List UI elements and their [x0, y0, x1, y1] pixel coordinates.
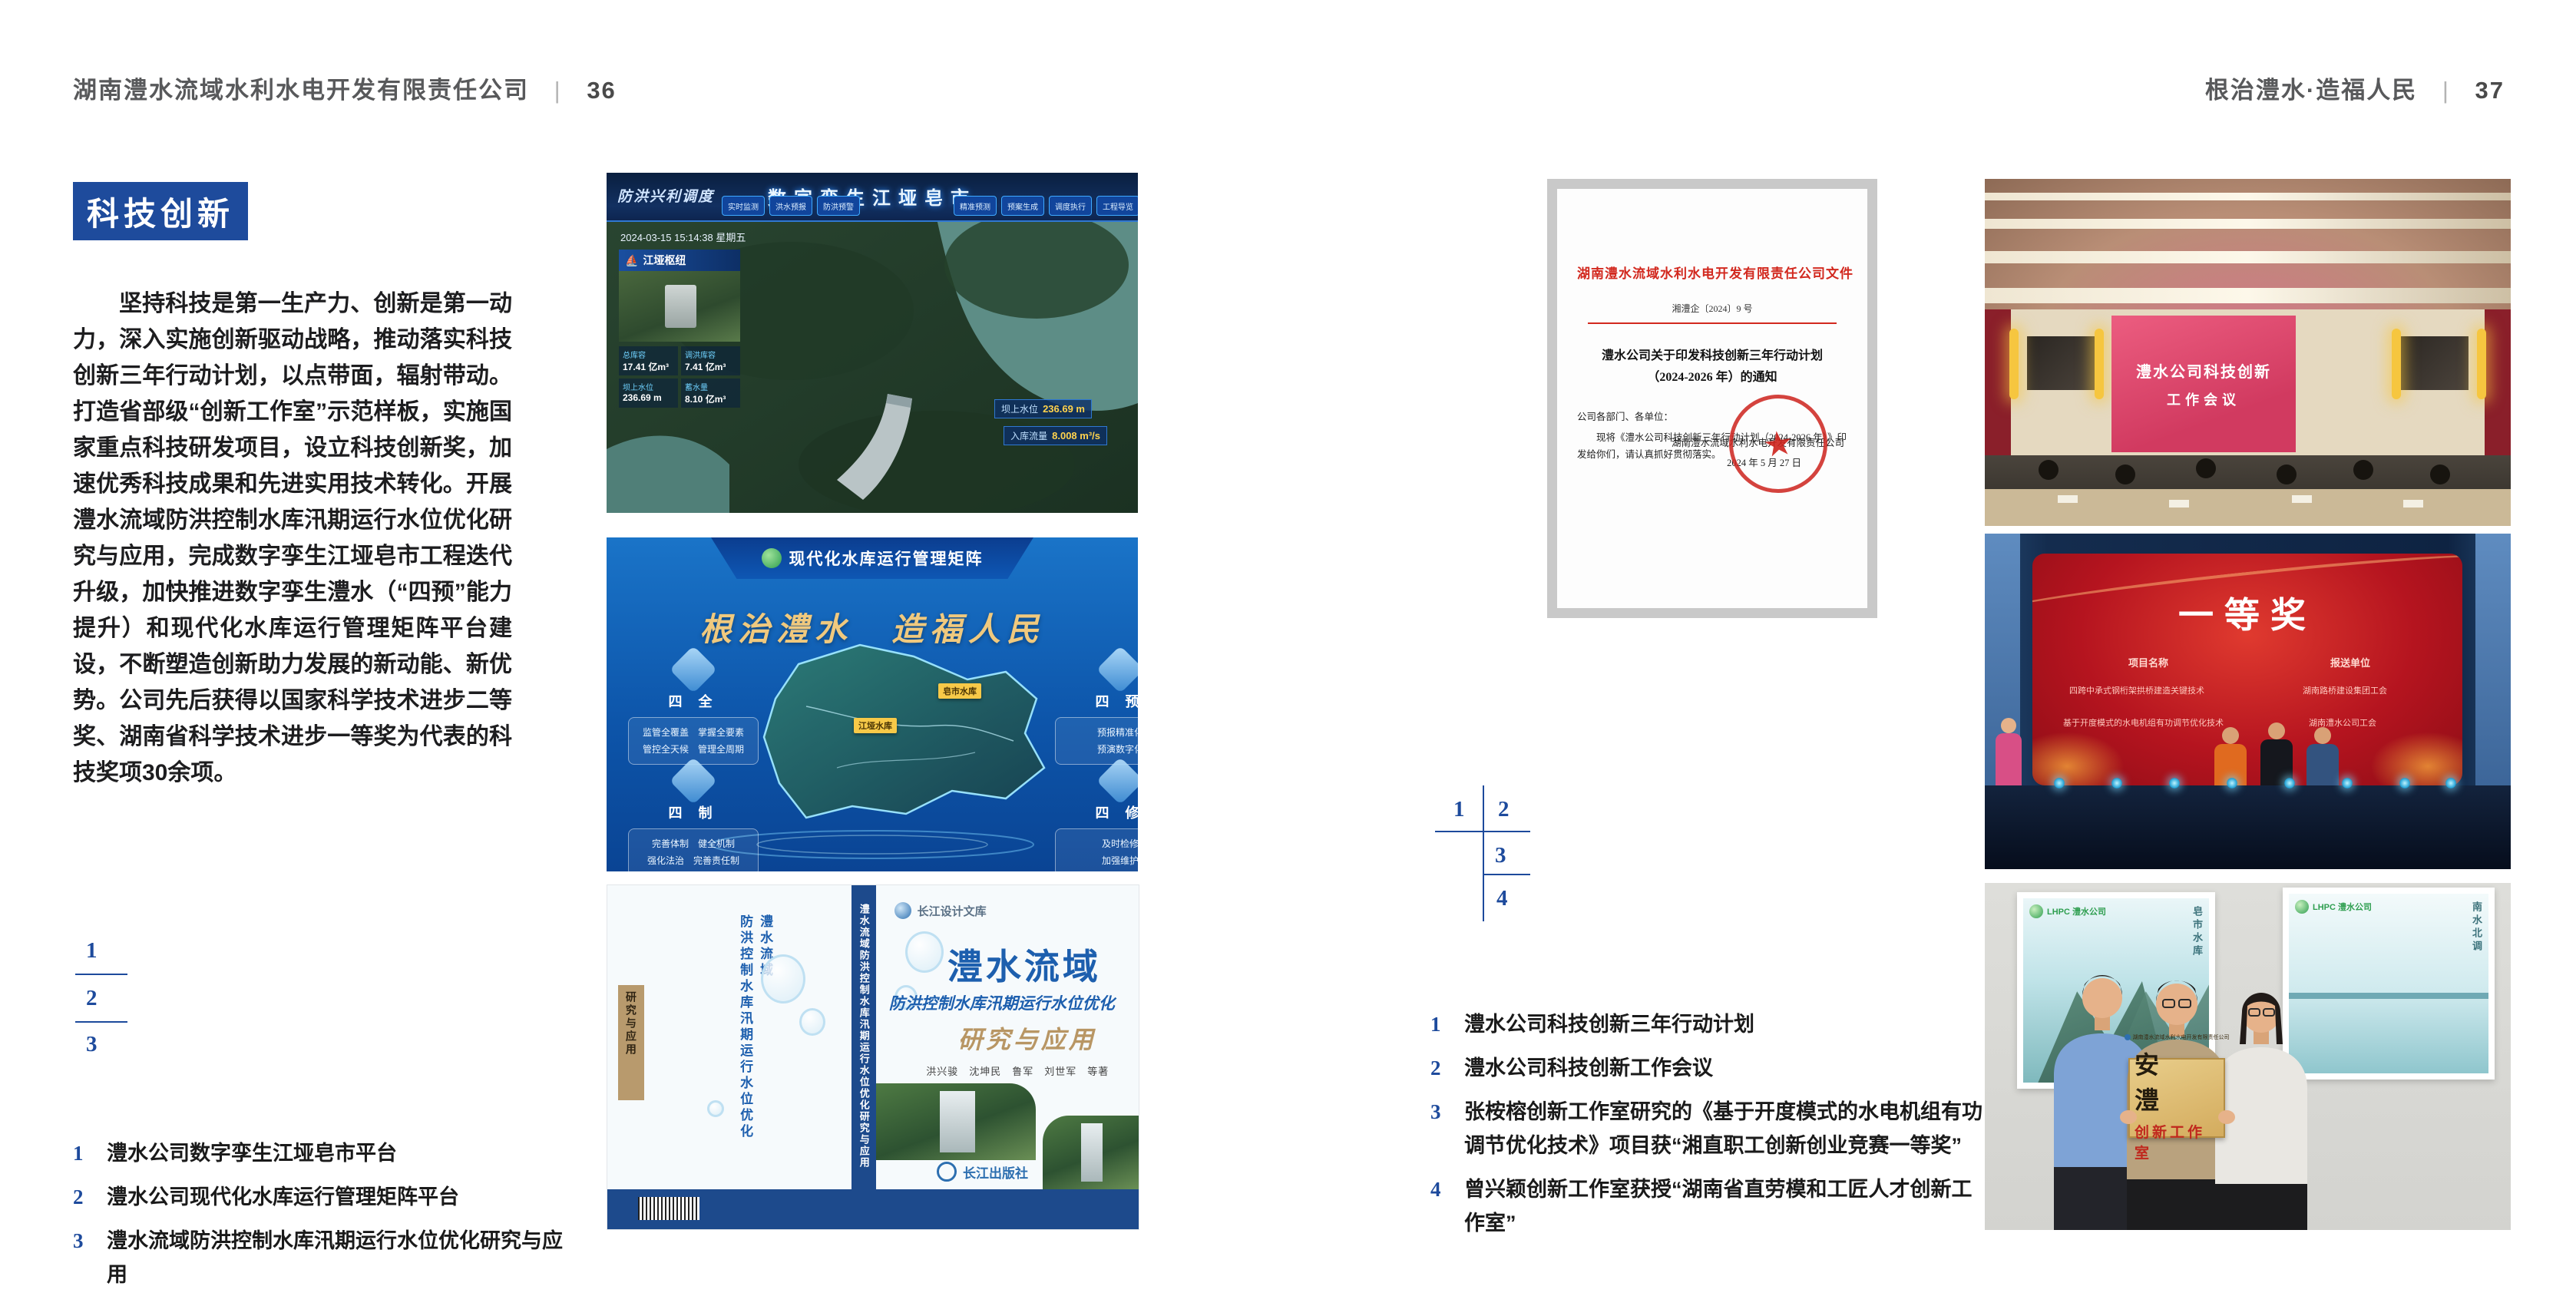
figure-index-3: 3 — [86, 1032, 98, 1057]
group-card: 监管全覆盖 掌握全要素 管控全天候 管理全周期 — [628, 717, 759, 765]
spine-title: 澧水流域防洪控制水库汛期运行水位优化研究与应用 — [857, 904, 871, 1169]
stage-light — [2445, 778, 2456, 789]
book-title-main: 澧水流域 — [947, 939, 1101, 990]
desk-paper — [2292, 495, 2312, 503]
stage-light — [2399, 778, 2410, 789]
diamond-icon — [670, 646, 717, 693]
series-name: 长江设计文库 — [918, 903, 987, 919]
caption-item: 3 张桉榕创新工作室研究的《基于开度模式的水电机组有功调节优化技术》项目获“湘直… — [1430, 1095, 1986, 1162]
tab-precise-forecast[interactable]: 精准预测 — [954, 196, 997, 216]
dam-photo-2 — [1043, 1116, 1139, 1189]
tab-flood-forecast[interactable]: 洪水预报 — [769, 196, 812, 216]
stat-label: 蓄水量 — [685, 381, 736, 392]
stat-label: 坝上水位 — [623, 381, 674, 392]
bubble-decoration — [799, 1008, 825, 1036]
map-tag-jiangya: 江垭水库 — [854, 718, 897, 733]
hand — [2120, 1110, 2137, 1124]
book-authors: 洪兴骏 沈坤民 鲁军 刘世军 等著 — [926, 1063, 1109, 1078]
back-cover-title: 澧水流域 防洪控制水库汛期运行水位优化 — [735, 914, 775, 1140]
bubble-decoration — [707, 1100, 724, 1117]
screen-line-1: 澧水公司科技创新 — [2136, 359, 2271, 382]
wall-red-panel — [1985, 309, 2011, 455]
panel-header: ⛵ 江垭枢纽 — [619, 250, 740, 271]
bubble-decoration — [905, 931, 944, 973]
group-line: 预报精准化 — [1060, 724, 1138, 741]
barcode — [638, 1197, 699, 1220]
left-page-header: 湖南澧水流域水利水电开发有限责任公司 | 36 — [73, 71, 617, 105]
tab-dispatch-execute[interactable]: 调度执行 — [1049, 196, 1092, 216]
header-separator: | — [554, 77, 562, 104]
matrix-title: 现代化水库运行管理矩阵 — [789, 547, 984, 570]
index-divider-vertical — [1483, 785, 1484, 921]
matrix-group-sizhi: 四 制 完善体制 健全机制 强化法治 完善责任制 — [628, 764, 759, 871]
body-paragraph: 坚持科技是第一生产力、创新是第一动力，深入实施创新驱动战略，推动落实科技创新三年… — [73, 286, 512, 791]
caption-text: 澧水公司科技创新三年行动计划 — [1464, 1007, 1986, 1041]
light-strip — [1985, 219, 2511, 229]
group-line: 及时检修 — [1060, 835, 1138, 852]
caption-item: 4 曾兴颖创新工作室获授“湖南省直劳模和工匠人才创新工作室” — [1430, 1172, 1986, 1240]
stat-cell: 总库容 17.41 亿m³ — [619, 346, 678, 375]
photo-award-ceremony: 一等奖 项目名称 报送单位 四跨中承式钢桁架拱桥建造关键技术 湖南路桥建设集团工… — [1985, 534, 2511, 869]
caption-number: 1 — [73, 1136, 107, 1170]
stage-light — [2169, 778, 2180, 789]
wall-lamp — [2095, 329, 2104, 399]
stat-value: 236.69 m — [623, 392, 674, 403]
figure-index-4: 4 — [1496, 886, 1508, 911]
book-spine: 澧水流域防洪控制水库汛期运行水位优化研究与应用 — [852, 885, 876, 1229]
presenter-head — [2268, 722, 2285, 739]
group-card: 完善体制 健全机制 强化法治 完善责任制 — [628, 828, 759, 871]
plaque-name: 安 澧 — [2135, 1046, 2219, 1116]
plaque-org-text: 湖南澧水流域水利水电开发有限责任公司 — [2133, 1033, 2230, 1041]
caption-item: 2 澧水公司科技创新工作会议 — [1430, 1051, 1986, 1085]
awardee-head — [2222, 727, 2239, 744]
document-page: 湖南澧水流域水利水电开发有限责任公司文件 湘澧企〔2024〕9 号 澧水公司关于… — [1557, 189, 1867, 608]
index-divider — [1483, 874, 1530, 875]
stage-light — [2227, 778, 2237, 789]
award-project-1: 四跨中承式钢桁架拱桥建造关键技术 — [2069, 684, 2204, 696]
map-tag-zaoshi: 皂市水库 — [938, 683, 981, 699]
book-title-tail: 研究与应用 — [958, 1020, 1096, 1056]
figure-official-document: 湖南澧水流域水利水电开发有限责任公司文件 湘澧企〔2024〕9 号 澧水公司关于… — [1547, 179, 1877, 618]
attendee-head — [2039, 460, 2058, 480]
matrix-group-siyu: 四 预 预报精准化 预演数字化 — [1055, 653, 1138, 765]
wall-red-panel — [2485, 309, 2511, 455]
matrix-group-siquan: 四 全 监管全覆盖 掌握全要素 管控全天候 管理全周期 — [628, 653, 759, 765]
series-logo-icon — [894, 902, 911, 919]
group-line: 管控全天候 管理全周期 — [633, 741, 753, 758]
caption-item: 2 澧水公司现代化水库运行管理矩阵平台 — [73, 1180, 564, 1214]
desk-paper — [2058, 495, 2078, 503]
dashboard-brand: 防洪兴利调度 — [617, 185, 714, 206]
attendee-head — [2430, 465, 2450, 484]
diamond-icon — [1096, 646, 1138, 693]
figure-index-1: 1 — [86, 938, 98, 964]
desk-paper — [2169, 500, 2189, 508]
tab-flood-warning[interactable]: 防洪预警 — [817, 196, 860, 216]
stat-cell: 蓄水量 8.10 亿m³ — [681, 379, 740, 408]
innovation-studio-plaque: 湖南澧水流域水利水电开发有限责任公司 安 澧 创新工作室 — [2128, 1058, 2225, 1138]
award-col-unit: 报送单位 — [2330, 655, 2370, 670]
stage-light — [2342, 778, 2353, 789]
company-name: 湖南澧水流域水利水电开发有限责任公司 — [73, 77, 529, 104]
diamond-icon — [670, 757, 717, 805]
people-illustration — [1985, 883, 2511, 1230]
stage-light — [2111, 778, 2122, 789]
caption-number: 2 — [73, 1180, 107, 1214]
chip-value: 236.69 m — [1043, 403, 1085, 415]
host-head — [2001, 718, 2016, 733]
caption-item: 1 澧水公司科技创新三年行动计划 — [1430, 1007, 1986, 1041]
document-title: 澧水公司关于印发科技创新三年行动计划 （2024-2026 年）的通知 — [1577, 346, 1847, 388]
brochure-spread: 湖南澧水流域水利水电开发有限责任公司 | 36 根治澧水·造福人民 | 37 科… — [0, 0, 2576, 1306]
stat-label: 总库容 — [623, 349, 674, 360]
book-title-sub: 防洪控制水库汛期运行水位优化 — [889, 991, 1115, 1014]
group-name: 四 全 — [628, 691, 759, 711]
document-red-rule — [1588, 322, 1837, 324]
left-caption-list: 1 澧水公司数字孪生江垭皂市平台 2 澧水公司现代化水库运行管理矩阵平台 3 澧… — [73, 1136, 564, 1291]
figure-index-1: 1 — [1453, 797, 1465, 822]
stat-cell: 坝上水位 236.69 m — [619, 379, 678, 408]
water-level-chip: 坝上水位 236.69 m — [994, 399, 1092, 418]
group-name: 四 预 — [1055, 691, 1138, 711]
stat-value: 8.10 亿m³ — [685, 392, 736, 405]
chip-label: 坝上水位 — [1001, 402, 1038, 415]
award-headline: 一等奖 — [2032, 587, 2462, 638]
light-strip — [1985, 251, 2511, 263]
index-divider — [75, 974, 127, 975]
document-red-header: 湖南澧水流域水利水电开发有限责任公司文件 — [1577, 263, 1847, 282]
caption-number: 2 — [1430, 1051, 1464, 1085]
figure-index-3: 3 — [1495, 843, 1506, 868]
wall-lamp — [2392, 329, 2401, 399]
official-seal: ★ — [1723, 388, 1834, 500]
figure-digital-twin-dashboard: 防洪兴利调度 数字孪生江垭皂市 实时监测 洪水预报 防洪预警 精准预测 预案生成… — [607, 173, 1138, 513]
light-strip — [1985, 288, 2511, 303]
gold-glow-decoration — [2032, 732, 2125, 785]
lhpc-logo-icon — [762, 548, 782, 568]
dam-thumbnail — [619, 271, 740, 342]
tab-project-tour[interactable]: 工程导览 — [1096, 196, 1138, 216]
caption-item: 1 澧水公司数字孪生江垭皂市平台 — [73, 1136, 564, 1170]
group-line: 强化法治 完善责任制 — [633, 852, 753, 869]
light-strip — [1985, 193, 2511, 200]
page-number-right: 37 — [2475, 77, 2505, 104]
index-divider — [1435, 831, 1530, 832]
stat-value: 17.41 亿m³ — [623, 360, 674, 373]
screen-line-2: 工作会议 — [2167, 389, 2240, 409]
award-unit-1: 湖南路桥建设集团工会 — [2303, 684, 2387, 696]
plaque-logo-icon — [2125, 1034, 2131, 1040]
photo-innovation-meeting: 澧水公司科技创新 工作会议 — [1985, 179, 2511, 526]
back-tag-text: 研究与应用 — [623, 991, 639, 1056]
chip-value: 8.008 m³/s — [1052, 430, 1100, 441]
caption-number: 3 — [73, 1224, 107, 1291]
plaque-org-line: 湖南澧水流域水利水电开发有限责任公司 — [2125, 1033, 2230, 1041]
wall-tv — [2396, 336, 2469, 390]
seal-star-icon: ★ — [1761, 422, 1796, 465]
panel-stats: 总库容 17.41 亿m³ 调洪库容 7.41 亿m³ 坝上水位 236.69 … — [619, 346, 740, 408]
desk-paper — [2403, 500, 2423, 508]
stage-floor — [1985, 785, 2511, 869]
document-number: 湘澧企〔2024〕9 号 — [1577, 302, 1847, 315]
matrix-header-ribbon: 现代化水库运行管理矩阵 — [711, 537, 1033, 579]
figure-book-cover: 研究与应用 澧水流域 防洪控制水库汛期运行水位优化 澧水流域防洪控制水库汛期运行… — [607, 884, 1139, 1230]
publisher-logo: 长江出版社 — [937, 1162, 1028, 1182]
right-page-header: 根治澧水·造福人民 | 37 — [2205, 71, 2505, 105]
award-project-2: 基于开度模式的水电机组有功调节优化技术 — [2063, 716, 2224, 729]
panel-title: 江垭枢纽 — [643, 253, 686, 268]
caption-text: 曾兴颖创新工作室获授“湖南省直劳模和工匠人才创新工作室” — [1464, 1172, 1986, 1240]
stat-cell: 调洪库容 7.41 亿m³ — [681, 346, 740, 375]
caption-text: 澧水公司现代化水库运行管理矩阵平台 — [107, 1180, 564, 1214]
figure-index-2: 2 — [86, 986, 98, 1011]
group-line: 监管全覆盖 掌握全要素 — [633, 724, 753, 741]
hand — [2218, 1110, 2235, 1124]
section-title-badge: 科技创新 — [73, 182, 248, 240]
publisher-name: 长江出版社 — [963, 1162, 1028, 1182]
stat-label: 调洪库容 — [685, 349, 736, 360]
tab-plan-generate[interactable]: 预案生成 — [1001, 196, 1044, 216]
caption-text: 澧水公司科技创新工作会议 — [1464, 1051, 1986, 1085]
caption-item: 3 澧水流域防洪控制水库汛期运行水位优化研究与应用 — [73, 1224, 564, 1291]
tab-realtime-monitor[interactable]: 实时监测 — [722, 196, 765, 216]
stat-value: 7.41 亿m³ — [685, 360, 736, 373]
group-card: 预报精准化 预演数字化 — [1055, 717, 1138, 765]
attendee-head — [2277, 465, 2297, 484]
bubble-decoration — [761, 954, 805, 1003]
figure-index-2: 2 — [1498, 797, 1510, 822]
caption-text: 澧水流域防洪控制水库汛期运行水位优化研究与应用 — [107, 1224, 564, 1291]
plaque-subtitle: 创新工作室 — [2135, 1121, 2219, 1162]
series-badge: 长江设计文库 — [894, 902, 987, 919]
header-separator: | — [2442, 77, 2450, 104]
caption-text: 澧水公司数字孪生江垭皂市平台 — [107, 1136, 564, 1170]
stage-light — [2054, 778, 2065, 789]
diamond-icon — [1096, 757, 1138, 805]
attendee-head — [2353, 460, 2373, 480]
award-col-project: 项目名称 — [2128, 655, 2168, 670]
group-name: 四 制 — [628, 802, 759, 822]
photo-studio-plaque: LHPC 澧水公司 皂市水库 LHPC 澧水公司 南水北调 — [1985, 883, 2511, 1230]
sail-icon: ⛵ — [625, 254, 638, 267]
wall-lamp — [2009, 329, 2019, 399]
wall-lamp — [2477, 329, 2486, 399]
group-line: 完善体制 健全机制 — [633, 835, 753, 852]
group-line: 预演数字化 — [1060, 741, 1138, 758]
group-line: 加强维护 — [1060, 852, 1138, 869]
caption-number: 3 — [1430, 1095, 1464, 1162]
group-card: 及时检修 加强维护 — [1055, 828, 1138, 871]
attendee-head — [2196, 458, 2216, 478]
group-name: 四 修 — [1055, 802, 1138, 822]
caption-number: 4 — [1430, 1172, 1464, 1240]
matrix-slogan: 根治澧水 造福人民 — [699, 603, 1045, 650]
dashboard-left-panel: ⛵ 江垭枢纽 总库容 17.41 亿m³ 调洪库容 7.41 亿m³ 坝上水位 … — [619, 250, 740, 408]
figure-management-matrix: 现代化水库运行管理矩阵 根治澧水 造福人民 四 全 监管全覆盖 掌握全要素 管控… — [607, 537, 1138, 871]
back-cover-tag: 研究与应用 — [618, 985, 644, 1100]
attendee-head — [2115, 465, 2135, 484]
index-divider — [75, 1021, 127, 1023]
matrix-group-sixiu: 四 修 及时检修 加强维护 — [1055, 764, 1138, 871]
dam-photo-1 — [876, 1083, 1036, 1160]
chip-label: 入库流量 — [1010, 429, 1047, 442]
meeting-screen: 澧水公司科技创新 工作会议 — [2111, 316, 2296, 452]
stage-light — [2284, 778, 2295, 789]
slogan-title: 根治澧水·造福人民 — [2205, 77, 2417, 104]
page-number-left: 36 — [587, 77, 616, 104]
dashboard-datetime: 2024-03-15 15:14:38 星期五 — [620, 230, 746, 244]
caption-number: 1 — [1430, 1007, 1464, 1041]
awardee-head — [2314, 727, 2331, 744]
caption-text: 张桉榕创新工作室研究的《基于开度模式的水电机组有功调节优化技术》项目获“湘直职工… — [1464, 1095, 1986, 1162]
wall-tv — [2027, 336, 2100, 390]
inflow-chip: 入库流量 8.008 m³/s — [1004, 426, 1107, 445]
publisher-icon — [937, 1162, 957, 1182]
right-caption-list: 1 澧水公司科技创新三年行动计划 2 澧水公司科技创新工作会议 3 张桉榕创新工… — [1430, 1007, 1986, 1240]
